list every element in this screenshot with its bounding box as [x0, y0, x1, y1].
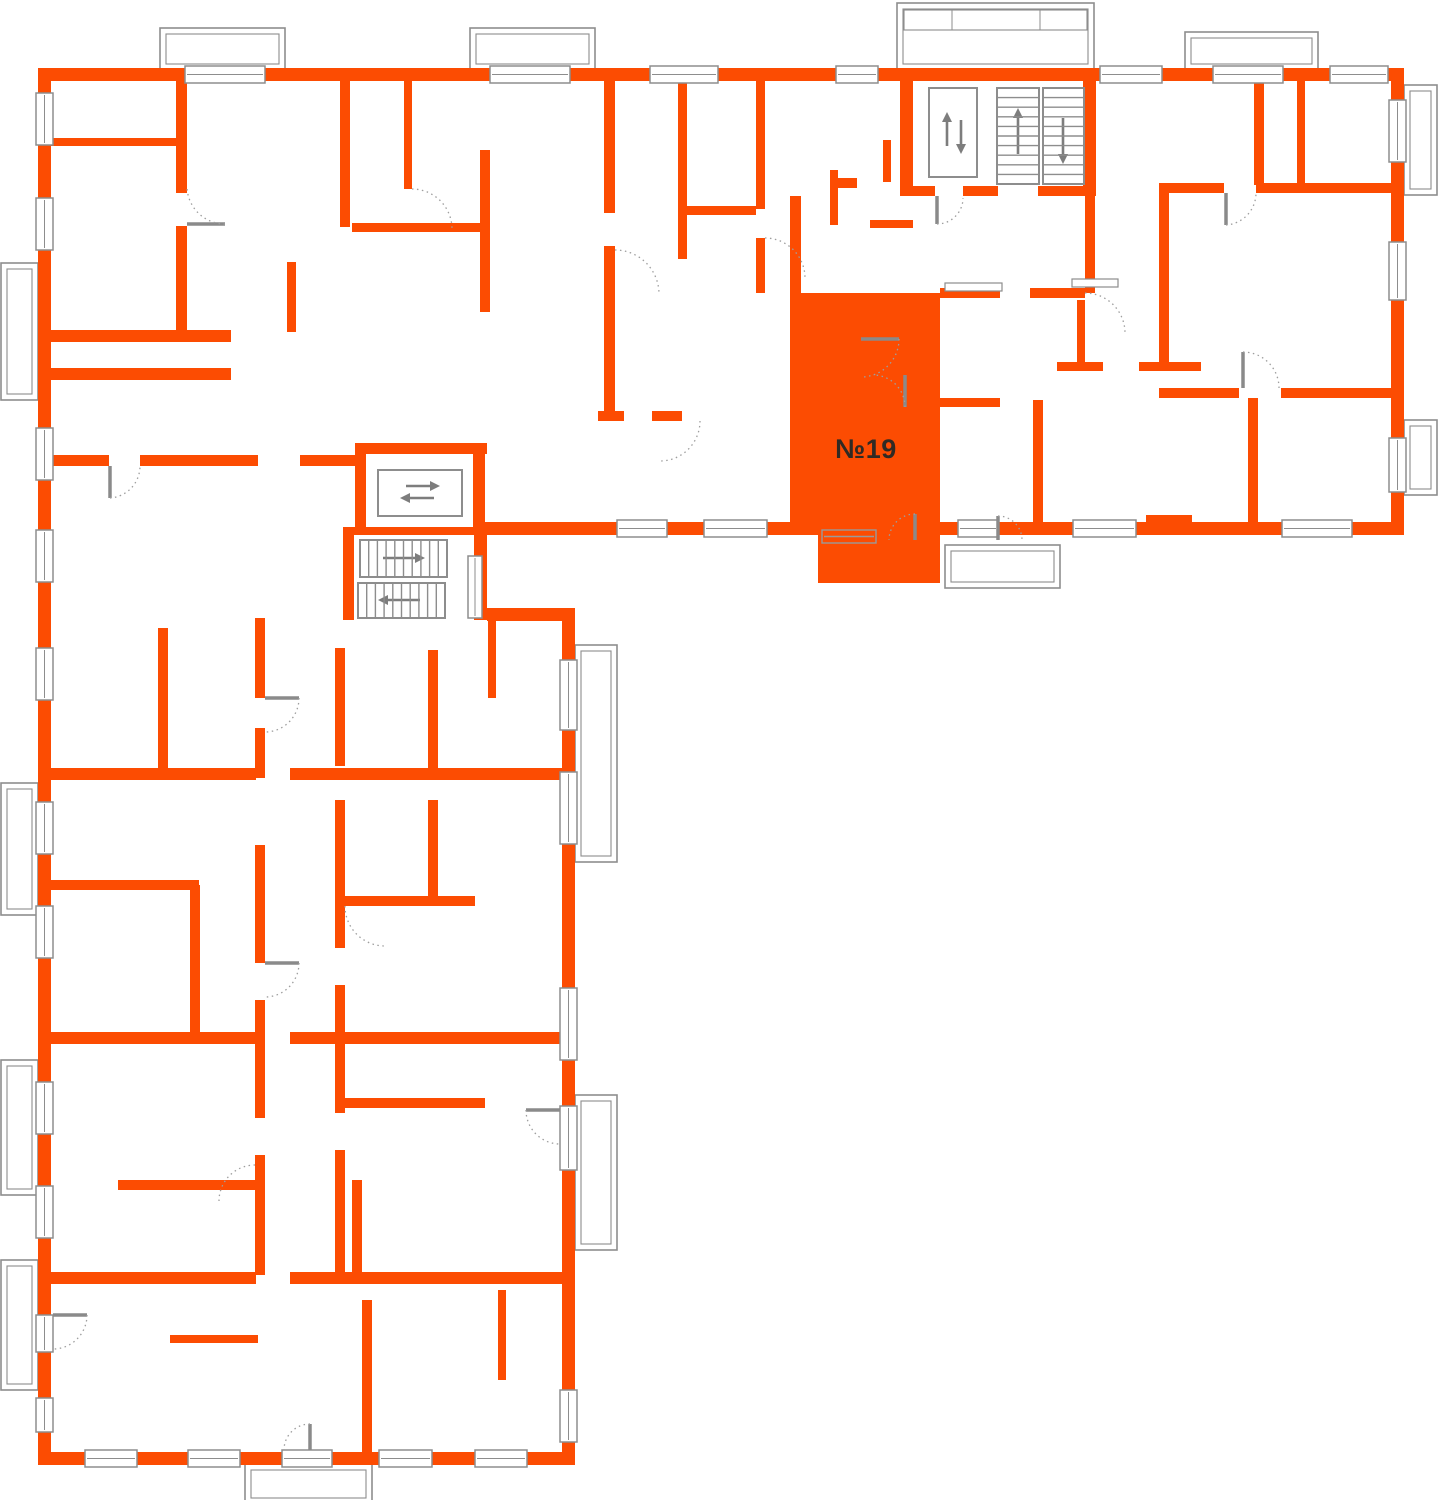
balcony: [1404, 420, 1437, 495]
floor-plan-page: №19: [0, 0, 1440, 1500]
stairs-down-arrow-icon: [1058, 118, 1068, 164]
entrance-canopy: [897, 3, 1094, 70]
exterior-walls: [38, 68, 1404, 1465]
balcony: [245, 1464, 372, 1500]
apartment-19-area[interactable]: [790, 293, 940, 535]
apartment-19[interactable]: №19: [790, 293, 940, 583]
apartment-19-label: №19: [835, 434, 897, 464]
elevator-side: [378, 470, 462, 516]
elevator-shaft: [378, 470, 462, 516]
elevator-leftright-icon: [400, 481, 440, 503]
stairs-up-arrow-icon: [1013, 108, 1023, 154]
stairs-top: [997, 88, 1084, 184]
floor-plan-svg: №19: [0, 0, 1440, 1500]
apartment-19-loggia[interactable]: [818, 535, 940, 583]
entrance-canopy-band: [904, 10, 1087, 30]
elevator-shaft: [929, 88, 977, 177]
doors: [53, 186, 1279, 1450]
elevator-top: [929, 88, 977, 177]
interior-walls: [51, 68, 1391, 1452]
windows: [36, 66, 1406, 1467]
balcony: [1404, 85, 1437, 195]
elevator-updown-icon: [942, 112, 966, 154]
stairs-side: [358, 540, 447, 618]
